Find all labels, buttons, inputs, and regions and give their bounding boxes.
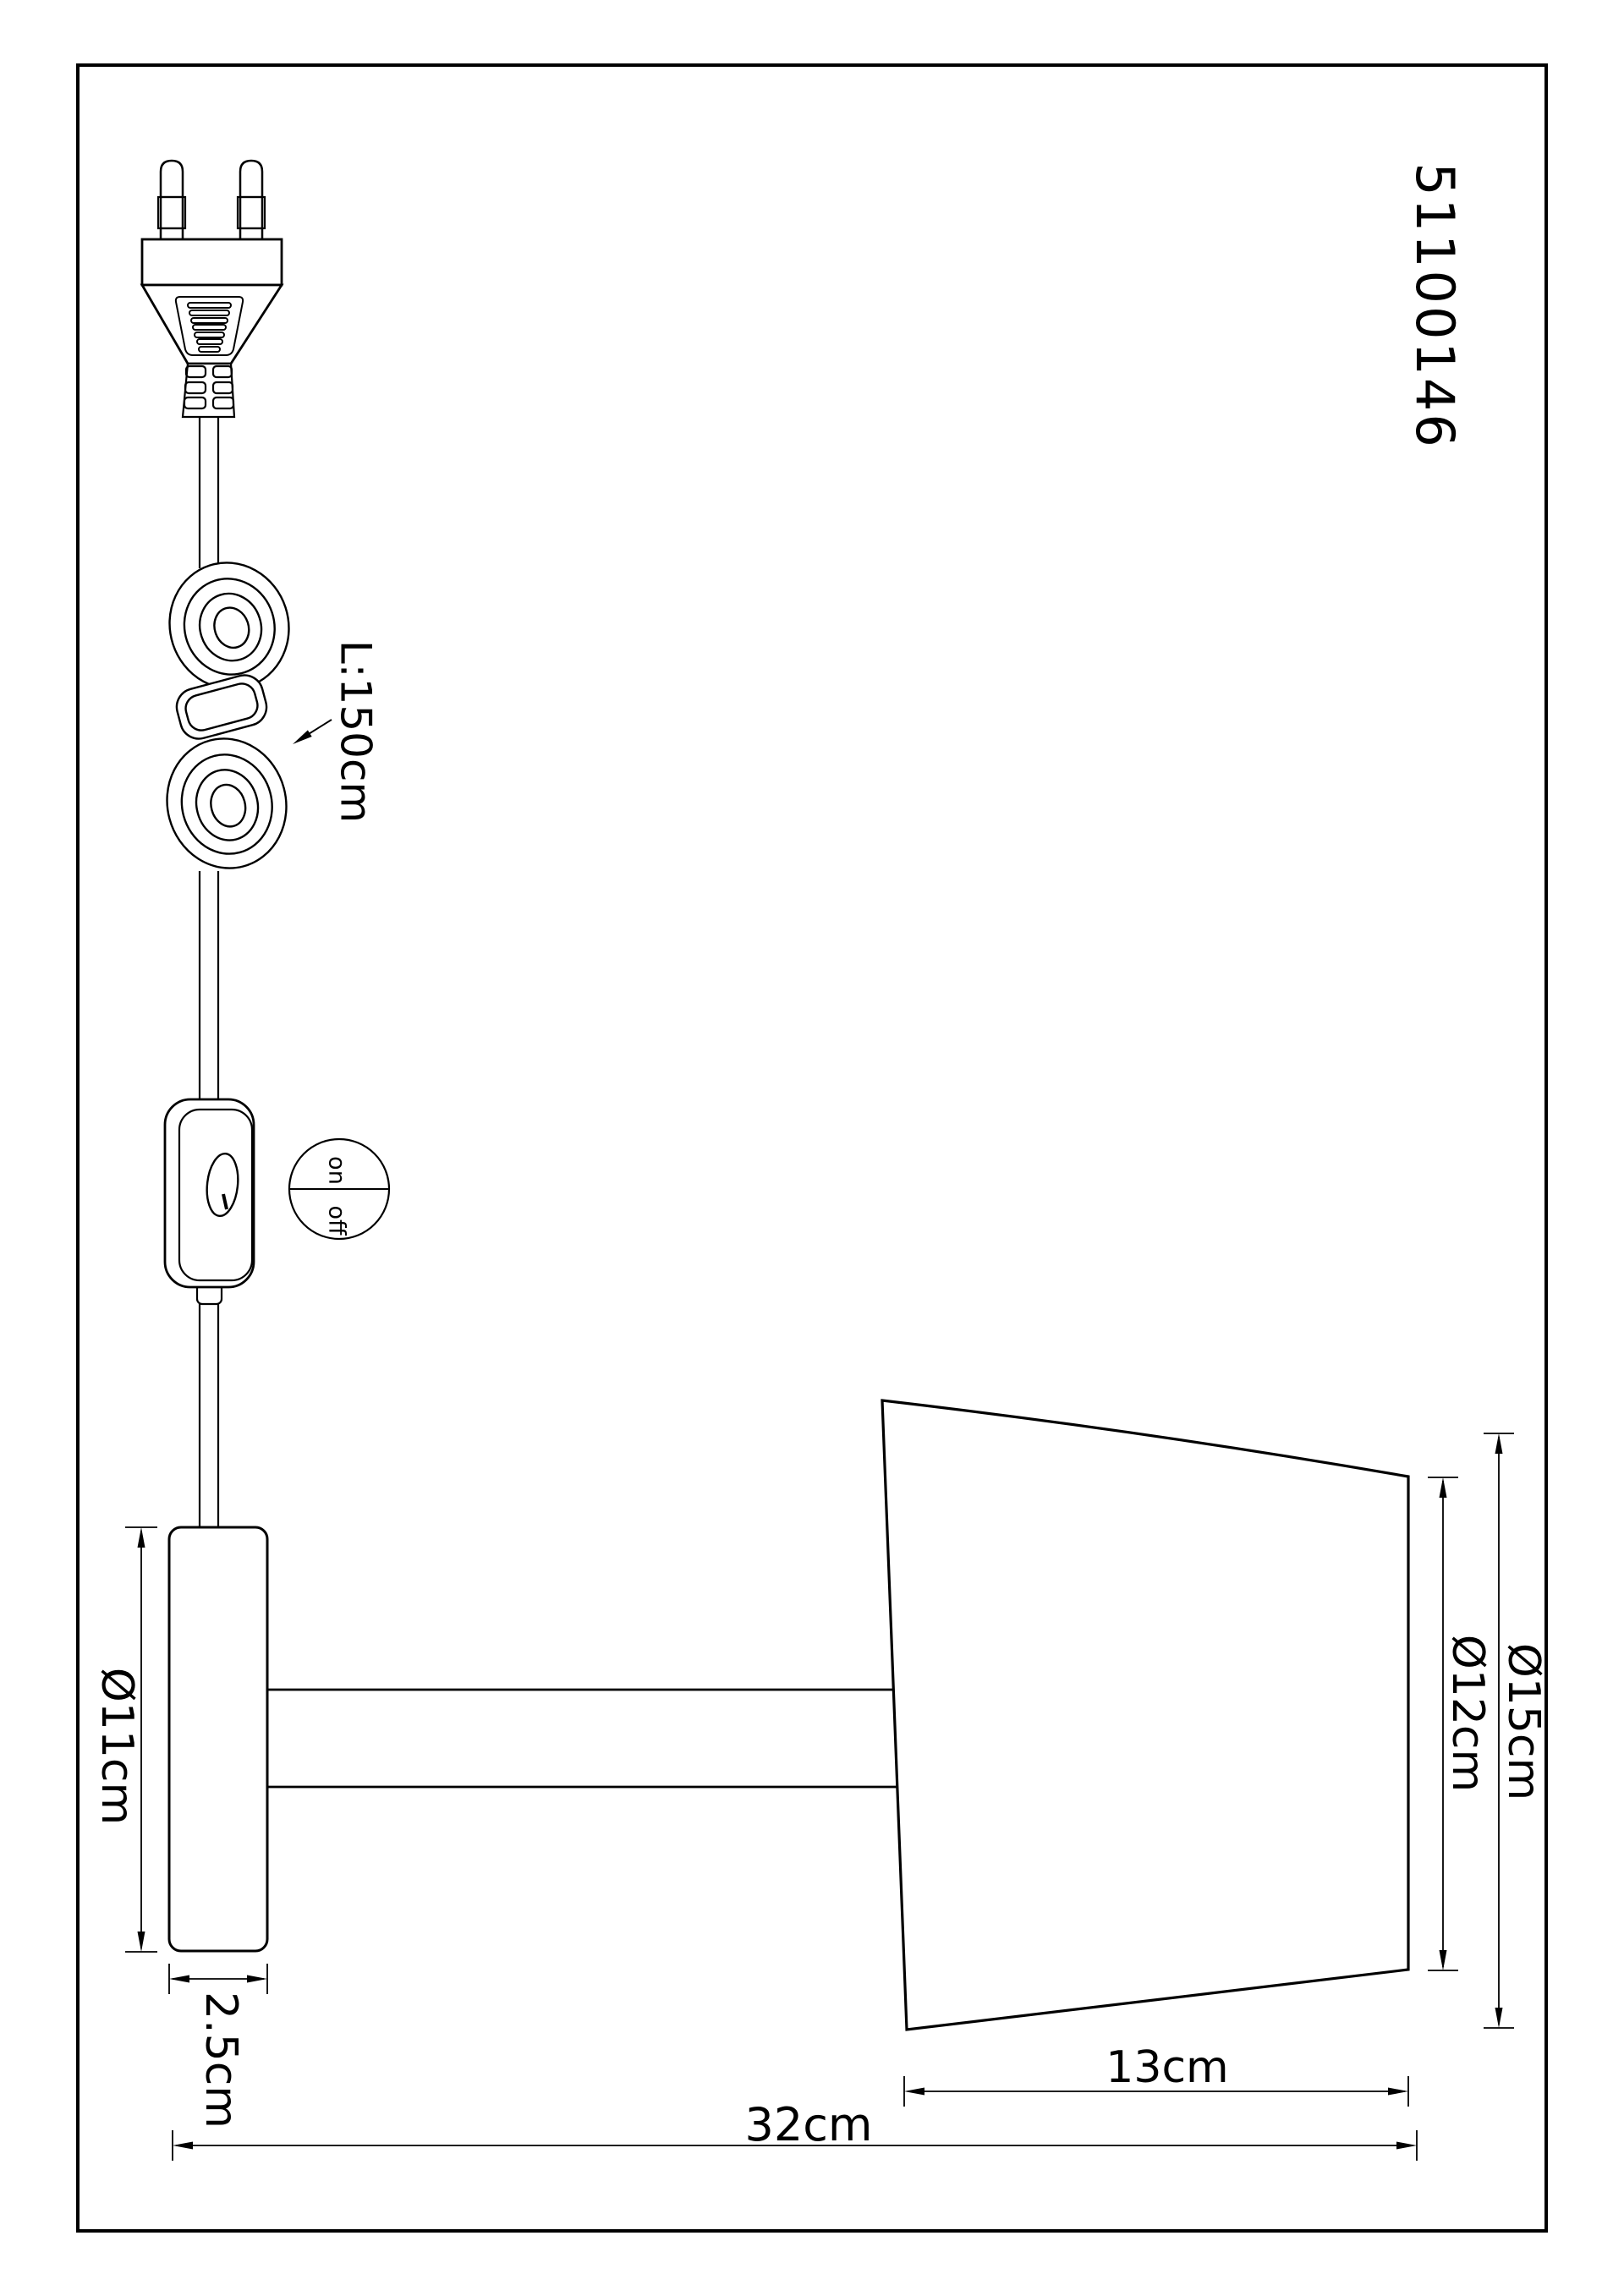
dim-label-shade-depth: 13cm (1106, 2042, 1228, 2093)
dim-label-total-projection: 32cm (744, 2098, 872, 2151)
dim-label-plate-diameter: Ø11cm (91, 1668, 142, 1825)
plug-vent-grip (176, 297, 243, 355)
dim-total-projection: 32cm (173, 2098, 1417, 2161)
plug-body (142, 239, 282, 285)
switch-on-label: on (324, 1156, 350, 1185)
dim-mount-plate-diameter: Ø11cm (91, 1527, 157, 1952)
cable-length-label: L:150cm (332, 640, 381, 823)
wall-lamp-technical-drawing: 51100146 (0, 0, 1624, 2296)
coil-lower-loop (152, 726, 300, 882)
inline-switch (165, 1099, 254, 1304)
part-number-label: 51100146 (1404, 162, 1466, 450)
dim-label-shade-max-diameter: Ø15cm (1498, 1643, 1549, 1800)
coil-wrap-band (173, 671, 271, 743)
wall-mount-plate (169, 1527, 267, 1951)
plug-strain-relief (183, 364, 234, 417)
dim-shade-front-diameter: Ø12cm (1428, 1477, 1493, 1970)
dim-shade-depth: 13cm (904, 2042, 1408, 2107)
plug-pin-left (158, 161, 185, 239)
power-plug (142, 161, 282, 417)
callout-arrowhead (293, 730, 312, 744)
technical-drawing-sheet: 51100146 (0, 0, 1624, 2296)
lamp-arm (267, 1690, 898, 1787)
on-off-indicator: on off (289, 1139, 389, 1239)
dim-label-shade-front-diameter: Ø12cm (1442, 1635, 1493, 1792)
cable-length-callout: L:150cm (293, 640, 381, 823)
plug-pin-right (238, 161, 265, 239)
lamp-shade (882, 1400, 1408, 2030)
dim-label-plate-depth: 2.5cm (195, 1992, 246, 2129)
coiled-cable (152, 547, 304, 881)
dim-mount-plate-depth: 2.5cm (169, 1964, 267, 2129)
switch-off-label: off (324, 1205, 350, 1236)
